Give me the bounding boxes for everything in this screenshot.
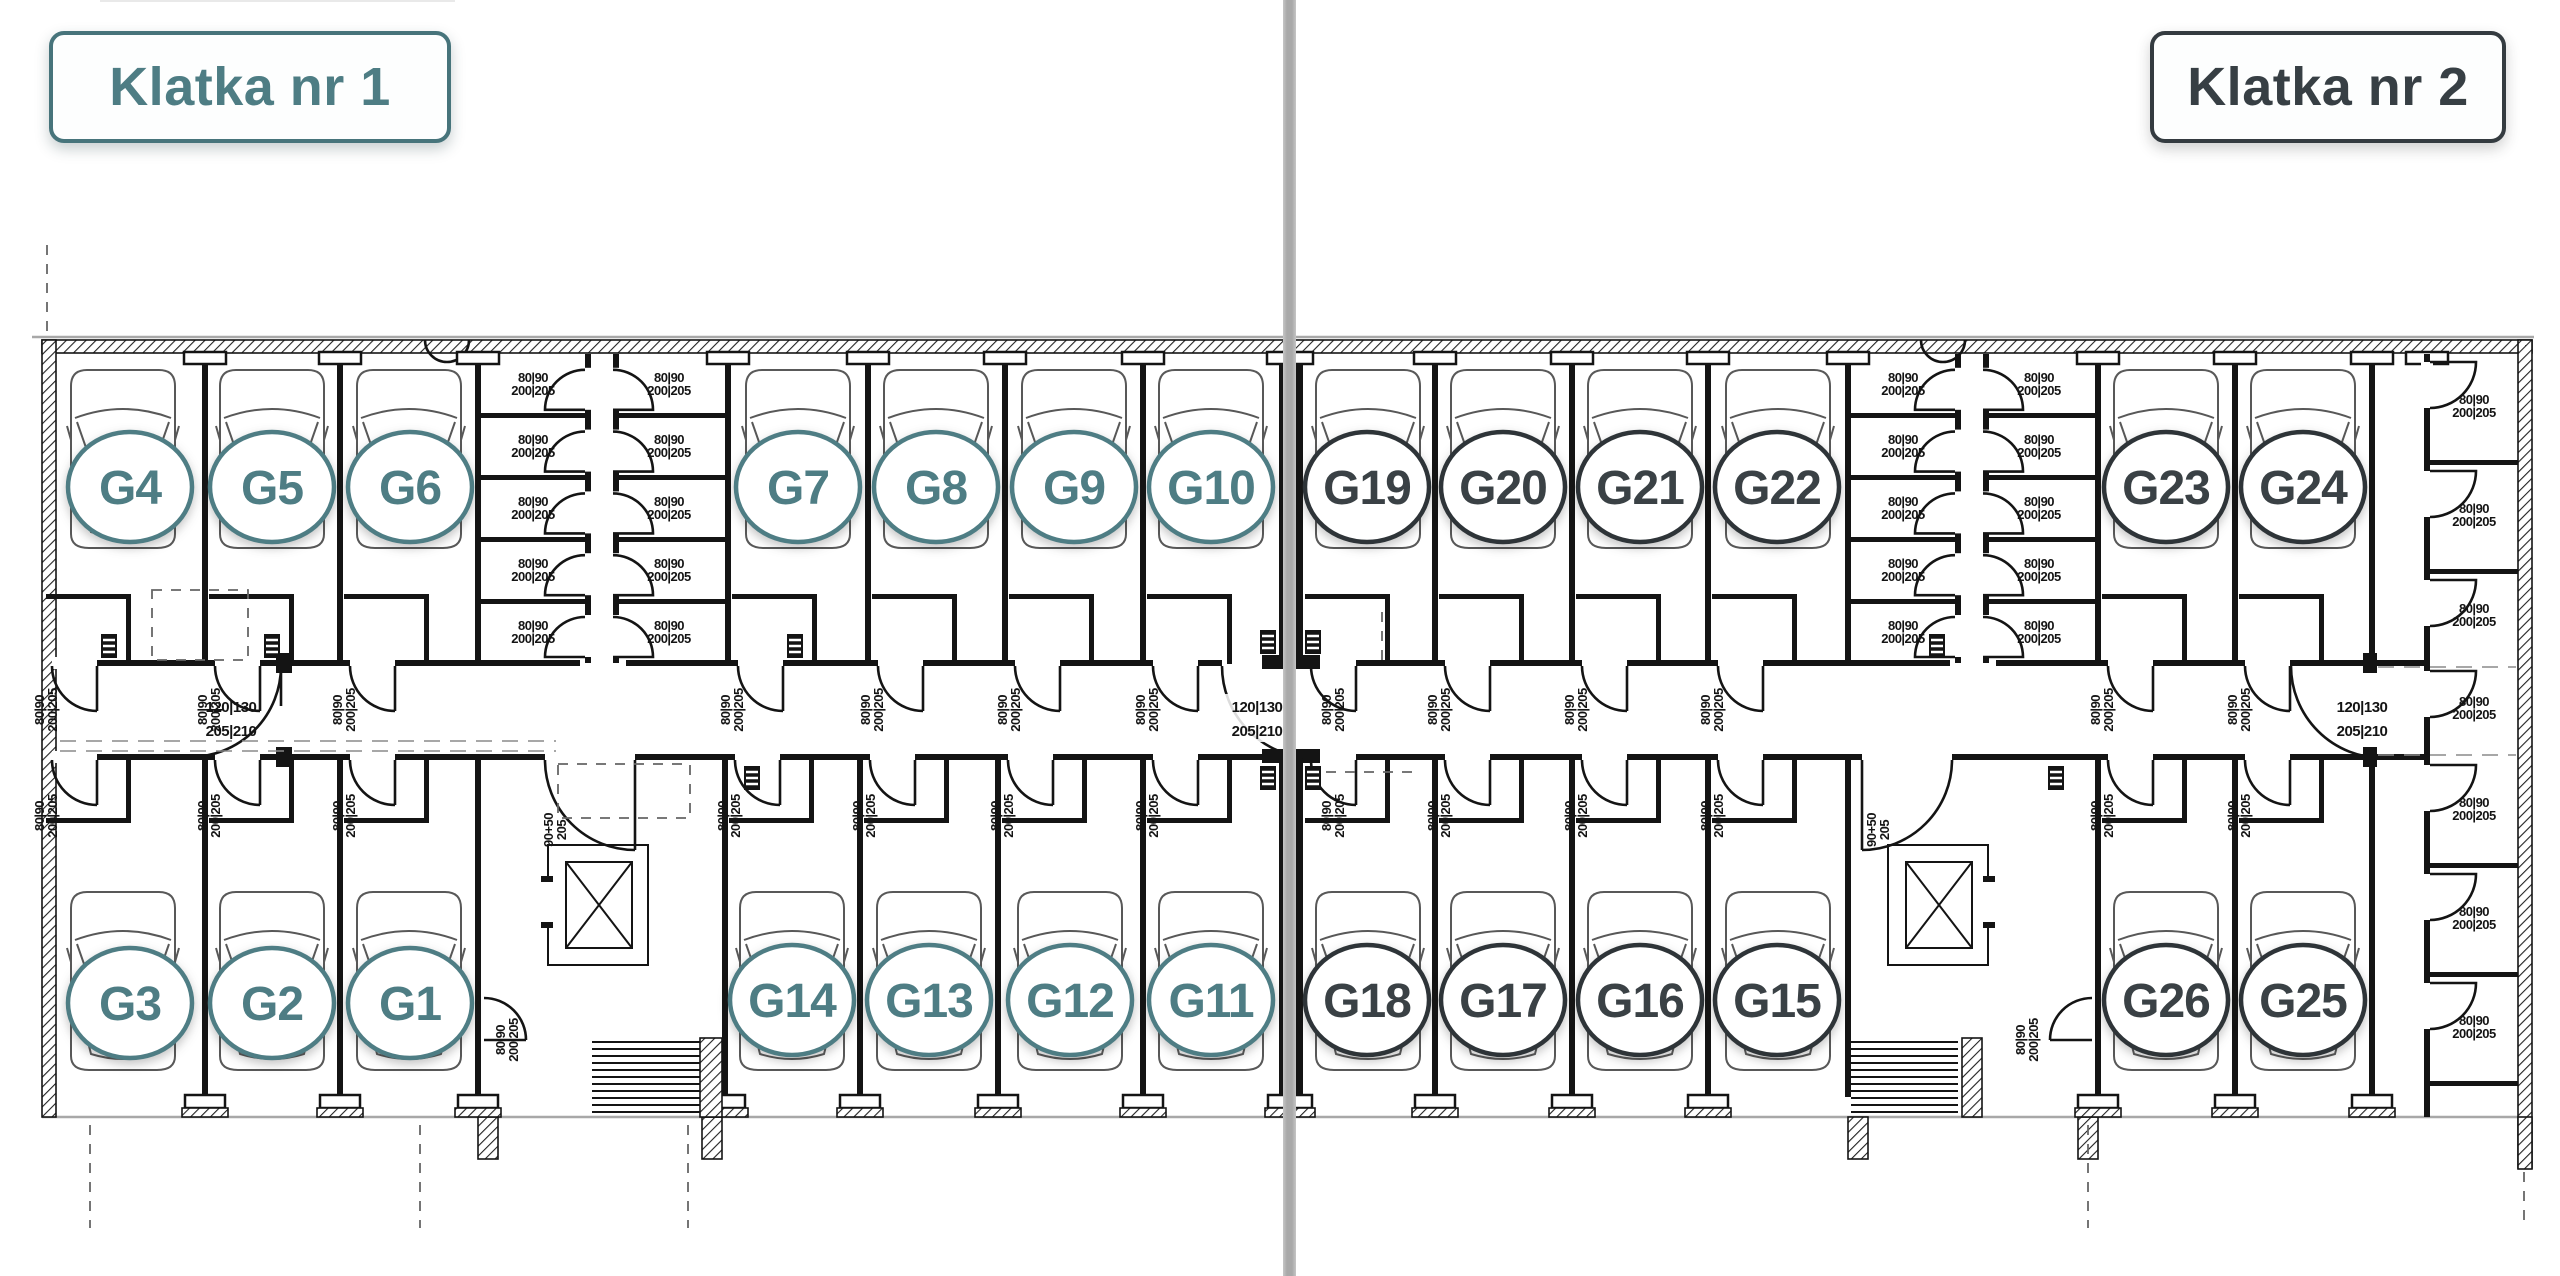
svg-text:200|205: 200|205 xyxy=(863,794,878,838)
stair-block-right xyxy=(1851,760,2092,1117)
garage-badge-g11[interactable]: G11 xyxy=(1149,945,1273,1055)
svg-text:205: 205 xyxy=(554,820,569,840)
svg-text:G15: G15 xyxy=(1733,975,1821,1028)
svg-text:200|205: 200|205 xyxy=(2452,1026,2496,1041)
svg-text:200|205: 200|205 xyxy=(2017,445,2061,460)
svg-text:200|205: 200|205 xyxy=(45,794,60,838)
garage-badge-g4[interactable]: G4 xyxy=(68,432,192,542)
svg-text:G17: G17 xyxy=(1459,975,1547,1028)
svg-text:205|210: 205|210 xyxy=(1232,723,1283,740)
svg-text:200|205: 200|205 xyxy=(2452,808,2496,823)
garage-badge-g6[interactable]: G6 xyxy=(348,432,472,542)
svg-text:200|205: 200|205 xyxy=(1881,445,1925,460)
klatka-2-button[interactable]: Klatka nr 2 xyxy=(2150,31,2506,143)
garage-badge-g5[interactable]: G5 xyxy=(210,432,334,542)
garage-badge-g1[interactable]: G1 xyxy=(348,948,472,1058)
svg-text:200|205: 200|205 xyxy=(647,383,691,398)
garage-badge-g16[interactable]: G16 xyxy=(1578,945,1702,1055)
svg-text:200|205: 200|205 xyxy=(2101,794,2116,838)
garage-badge-g21[interactable]: G21 xyxy=(1578,432,1702,542)
svg-text:200|205: 200|205 xyxy=(2452,514,2496,529)
svg-text:G22: G22 xyxy=(1733,462,1821,515)
svg-text:200|205: 200|205 xyxy=(1008,688,1023,732)
svg-text:205|210: 205|210 xyxy=(206,723,257,740)
svg-text:200|205: 200|205 xyxy=(2452,405,2496,420)
svg-text:200|205: 200|205 xyxy=(1146,794,1161,838)
svg-text:200|205: 200|205 xyxy=(647,507,691,522)
svg-text:200|205: 200|205 xyxy=(1711,794,1726,838)
svg-text:G4: G4 xyxy=(99,462,162,515)
svg-text:205|210: 205|210 xyxy=(2337,723,2388,740)
svg-text:200|205: 200|205 xyxy=(647,569,691,584)
svg-text:200|205: 200|205 xyxy=(1001,794,1016,838)
svg-text:200|205: 200|205 xyxy=(2017,569,2061,584)
svg-text:200|205: 200|205 xyxy=(2452,917,2496,932)
svg-text:205: 205 xyxy=(1877,820,1892,840)
svg-text:200|205: 200|205 xyxy=(647,631,691,646)
svg-text:120|130: 120|130 xyxy=(206,699,257,716)
garage-badge-g10[interactable]: G10 xyxy=(1149,432,1273,542)
svg-text:200|205: 200|205 xyxy=(1881,383,1925,398)
garage-badge-g9[interactable]: G9 xyxy=(1012,432,1136,542)
svg-text:200|205: 200|205 xyxy=(1881,631,1925,646)
garage-badge-g18[interactable]: G18 xyxy=(1305,945,1429,1055)
stair-block-left xyxy=(484,760,722,1117)
svg-text:200|205: 200|205 xyxy=(343,794,358,838)
svg-text:200|205: 200|205 xyxy=(208,794,223,838)
svg-text:200|205: 200|205 xyxy=(1146,688,1161,732)
svg-text:G12: G12 xyxy=(1026,975,1114,1028)
svg-text:G20: G20 xyxy=(1459,462,1547,515)
svg-text:200|205: 200|205 xyxy=(1332,794,1347,838)
garage-badge-g8[interactable]: G8 xyxy=(874,432,998,542)
svg-text:G19: G19 xyxy=(1323,462,1411,515)
svg-text:200|205: 200|205 xyxy=(2017,507,2061,522)
svg-text:200|205: 200|205 xyxy=(2101,688,2116,732)
svg-text:G3: G3 xyxy=(99,978,161,1031)
floor-plan: 80|90200|205 80|90200|205 80|90200|205 8… xyxy=(0,0,2560,1276)
garage-badge-g7[interactable]: G7 xyxy=(736,432,860,542)
svg-text:200|205: 200|205 xyxy=(45,688,60,732)
garage-doors xyxy=(52,666,2383,805)
svg-text:200|205: 200|205 xyxy=(2238,794,2253,838)
floorplan-page: 80|90200|205 80|90200|205 80|90200|205 8… xyxy=(0,0,2560,1276)
storage-column-right-edge xyxy=(2421,354,2518,1117)
svg-text:200|205: 200|205 xyxy=(1575,794,1590,838)
svg-text:G24: G24 xyxy=(2259,462,2348,515)
svg-text:200|205: 200|205 xyxy=(2017,631,2061,646)
svg-text:200|205: 200|205 xyxy=(647,445,691,460)
svg-text:200|205: 200|205 xyxy=(2238,688,2253,732)
svg-text:200|205: 200|205 xyxy=(1575,688,1590,732)
svg-text:200|205: 200|205 xyxy=(511,445,555,460)
svg-text:200|205: 200|205 xyxy=(511,383,555,398)
garage-badges: G4 G5 G6 G7 G8 G9 G10 G19 G20 G21 G22 G2… xyxy=(68,432,2365,1058)
svg-text:200|205: 200|205 xyxy=(1332,688,1347,732)
svg-text:G14: G14 xyxy=(748,975,837,1028)
svg-text:G25: G25 xyxy=(2259,975,2347,1028)
svg-text:200|205: 200|205 xyxy=(1438,688,1453,732)
svg-text:200|205: 200|205 xyxy=(1711,688,1726,732)
garage-badge-g14[interactable]: G14 xyxy=(730,945,854,1055)
svg-text:G23: G23 xyxy=(2122,462,2210,515)
svg-text:G11: G11 xyxy=(1168,975,1253,1028)
svg-text:120|130: 120|130 xyxy=(1232,699,1283,716)
svg-text:G5: G5 xyxy=(241,462,303,515)
garage-badge-g13[interactable]: G13 xyxy=(867,945,991,1055)
garage-badge-g12[interactable]: G12 xyxy=(1008,945,1132,1055)
garage-badge-g15[interactable]: G15 xyxy=(1715,945,1839,1055)
svg-text:G8: G8 xyxy=(905,462,967,515)
comparison-divider[interactable] xyxy=(1283,0,1296,1276)
svg-text:200|205: 200|205 xyxy=(506,1018,521,1062)
svg-text:200|205: 200|205 xyxy=(731,688,746,732)
svg-text:200|205: 200|205 xyxy=(2452,614,2496,629)
svg-text:G18: G18 xyxy=(1323,975,1411,1028)
garage-badge-g19[interactable]: G19 xyxy=(1305,432,1429,542)
svg-text:G26: G26 xyxy=(2122,975,2210,1028)
garage-badge-g3[interactable]: G3 xyxy=(68,948,192,1058)
svg-text:G10: G10 xyxy=(1167,462,1255,515)
garage-badge-g17[interactable]: G17 xyxy=(1441,945,1565,1055)
svg-text:200|205: 200|205 xyxy=(871,688,886,732)
svg-text:G16: G16 xyxy=(1596,975,1684,1028)
garage-badge-g20[interactable]: G20 xyxy=(1441,432,1565,542)
garage-badge-g24[interactable]: G24 xyxy=(2241,432,2365,542)
garage-badge-g23[interactable]: G23 xyxy=(2104,432,2228,542)
svg-text:200|205: 200|205 xyxy=(511,631,555,646)
svg-text:G6: G6 xyxy=(379,462,441,515)
klatka-1-label: Klatka nr 1 xyxy=(109,56,391,118)
svg-text:200|205: 200|205 xyxy=(2017,383,2061,398)
svg-text:120|130: 120|130 xyxy=(2337,699,2388,716)
garage-badge-g22[interactable]: G22 xyxy=(1715,432,1839,542)
svg-text:G9: G9 xyxy=(1043,462,1105,515)
svg-text:200|205: 200|205 xyxy=(1881,569,1925,584)
svg-text:200|205: 200|205 xyxy=(1881,507,1925,522)
svg-text:G21: G21 xyxy=(1596,462,1684,515)
svg-text:200|205: 200|205 xyxy=(1438,794,1453,838)
svg-text:200|205: 200|205 xyxy=(511,507,555,522)
svg-text:G13: G13 xyxy=(885,975,973,1028)
svg-text:200|205: 200|205 xyxy=(511,569,555,584)
garage-badge-g26[interactable]: G26 xyxy=(2104,945,2228,1055)
svg-text:200|205: 200|205 xyxy=(2026,1018,2041,1062)
svg-text:G1: G1 xyxy=(379,978,441,1031)
klatka-1-button[interactable]: Klatka nr 1 xyxy=(49,31,451,143)
klatka-2-label: Klatka nr 2 xyxy=(2187,56,2469,118)
svg-text:G7: G7 xyxy=(767,462,829,515)
garage-badge-g2[interactable]: G2 xyxy=(210,948,334,1058)
svg-text:G2: G2 xyxy=(241,978,303,1031)
svg-text:200|205: 200|205 xyxy=(343,688,358,732)
svg-text:200|205: 200|205 xyxy=(2452,707,2496,722)
svg-text:200|205: 200|205 xyxy=(728,794,743,838)
garage-badge-g25[interactable]: G25 xyxy=(2241,945,2365,1055)
